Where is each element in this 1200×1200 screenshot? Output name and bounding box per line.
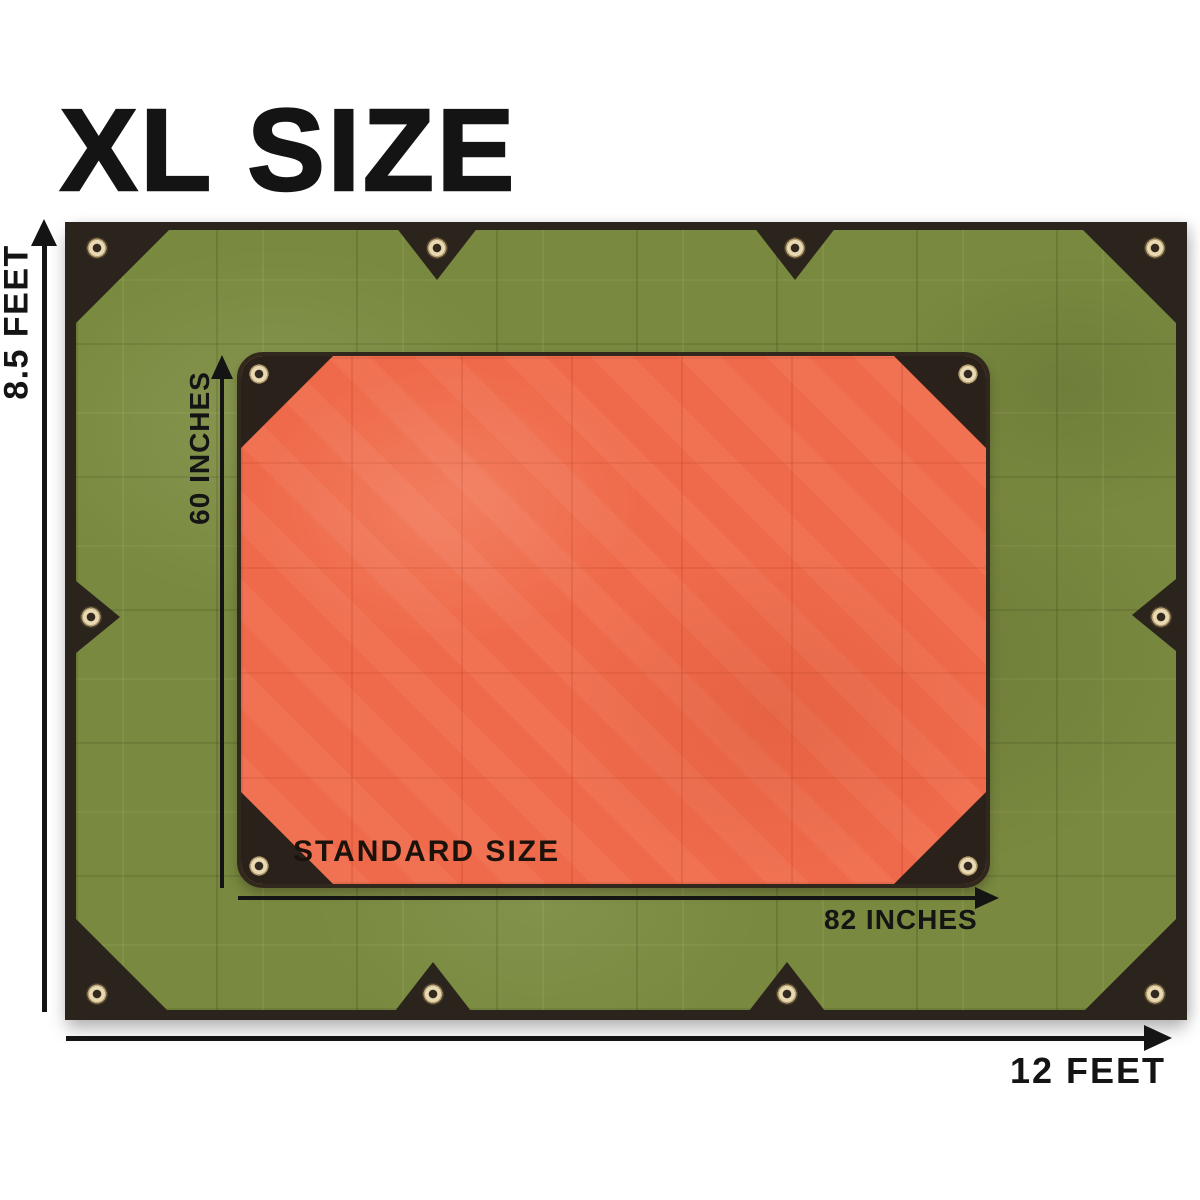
grommet-icon [1150,606,1172,628]
grommet-icon [776,983,798,1005]
grommet-icon [426,237,448,259]
tarp-size-comparison-diagram: XL SIZE STANDARD SIZE [0,0,1200,1200]
grommet-icon [86,983,108,1005]
arrow-head-icon [1144,1025,1172,1051]
standard-width-dimension-line [238,896,975,900]
arrow-head-icon [31,219,57,246]
xl-width-dimension-line [66,1036,1144,1041]
grommet-icon [249,856,269,876]
grommet-icon [1144,983,1166,1005]
grommet-icon [422,983,444,1005]
standard-tarp-fabric [241,356,986,884]
grommet-icon [784,237,806,259]
standard-tarp [237,352,990,888]
standard-height-label: 60 INCHES [184,371,216,525]
grommet-icon [958,364,978,384]
grommet-icon [1144,237,1166,259]
standard-height-dimension-line [220,379,224,888]
arrow-head-icon [975,887,999,909]
standard-size-label: STANDARD SIZE [293,835,560,869]
grommet-icon [249,364,269,384]
size-title: XL SIZE [60,92,517,208]
xl-width-label: 12 FEET [1010,1050,1166,1092]
xl-height-label: 8.5 FEET [0,244,37,400]
standard-width-label: 82 INCHES [824,904,978,936]
grommet-icon [86,237,108,259]
xl-height-dimension-line [42,245,47,1012]
grommet-icon [958,856,978,876]
grommet-icon [80,606,102,628]
